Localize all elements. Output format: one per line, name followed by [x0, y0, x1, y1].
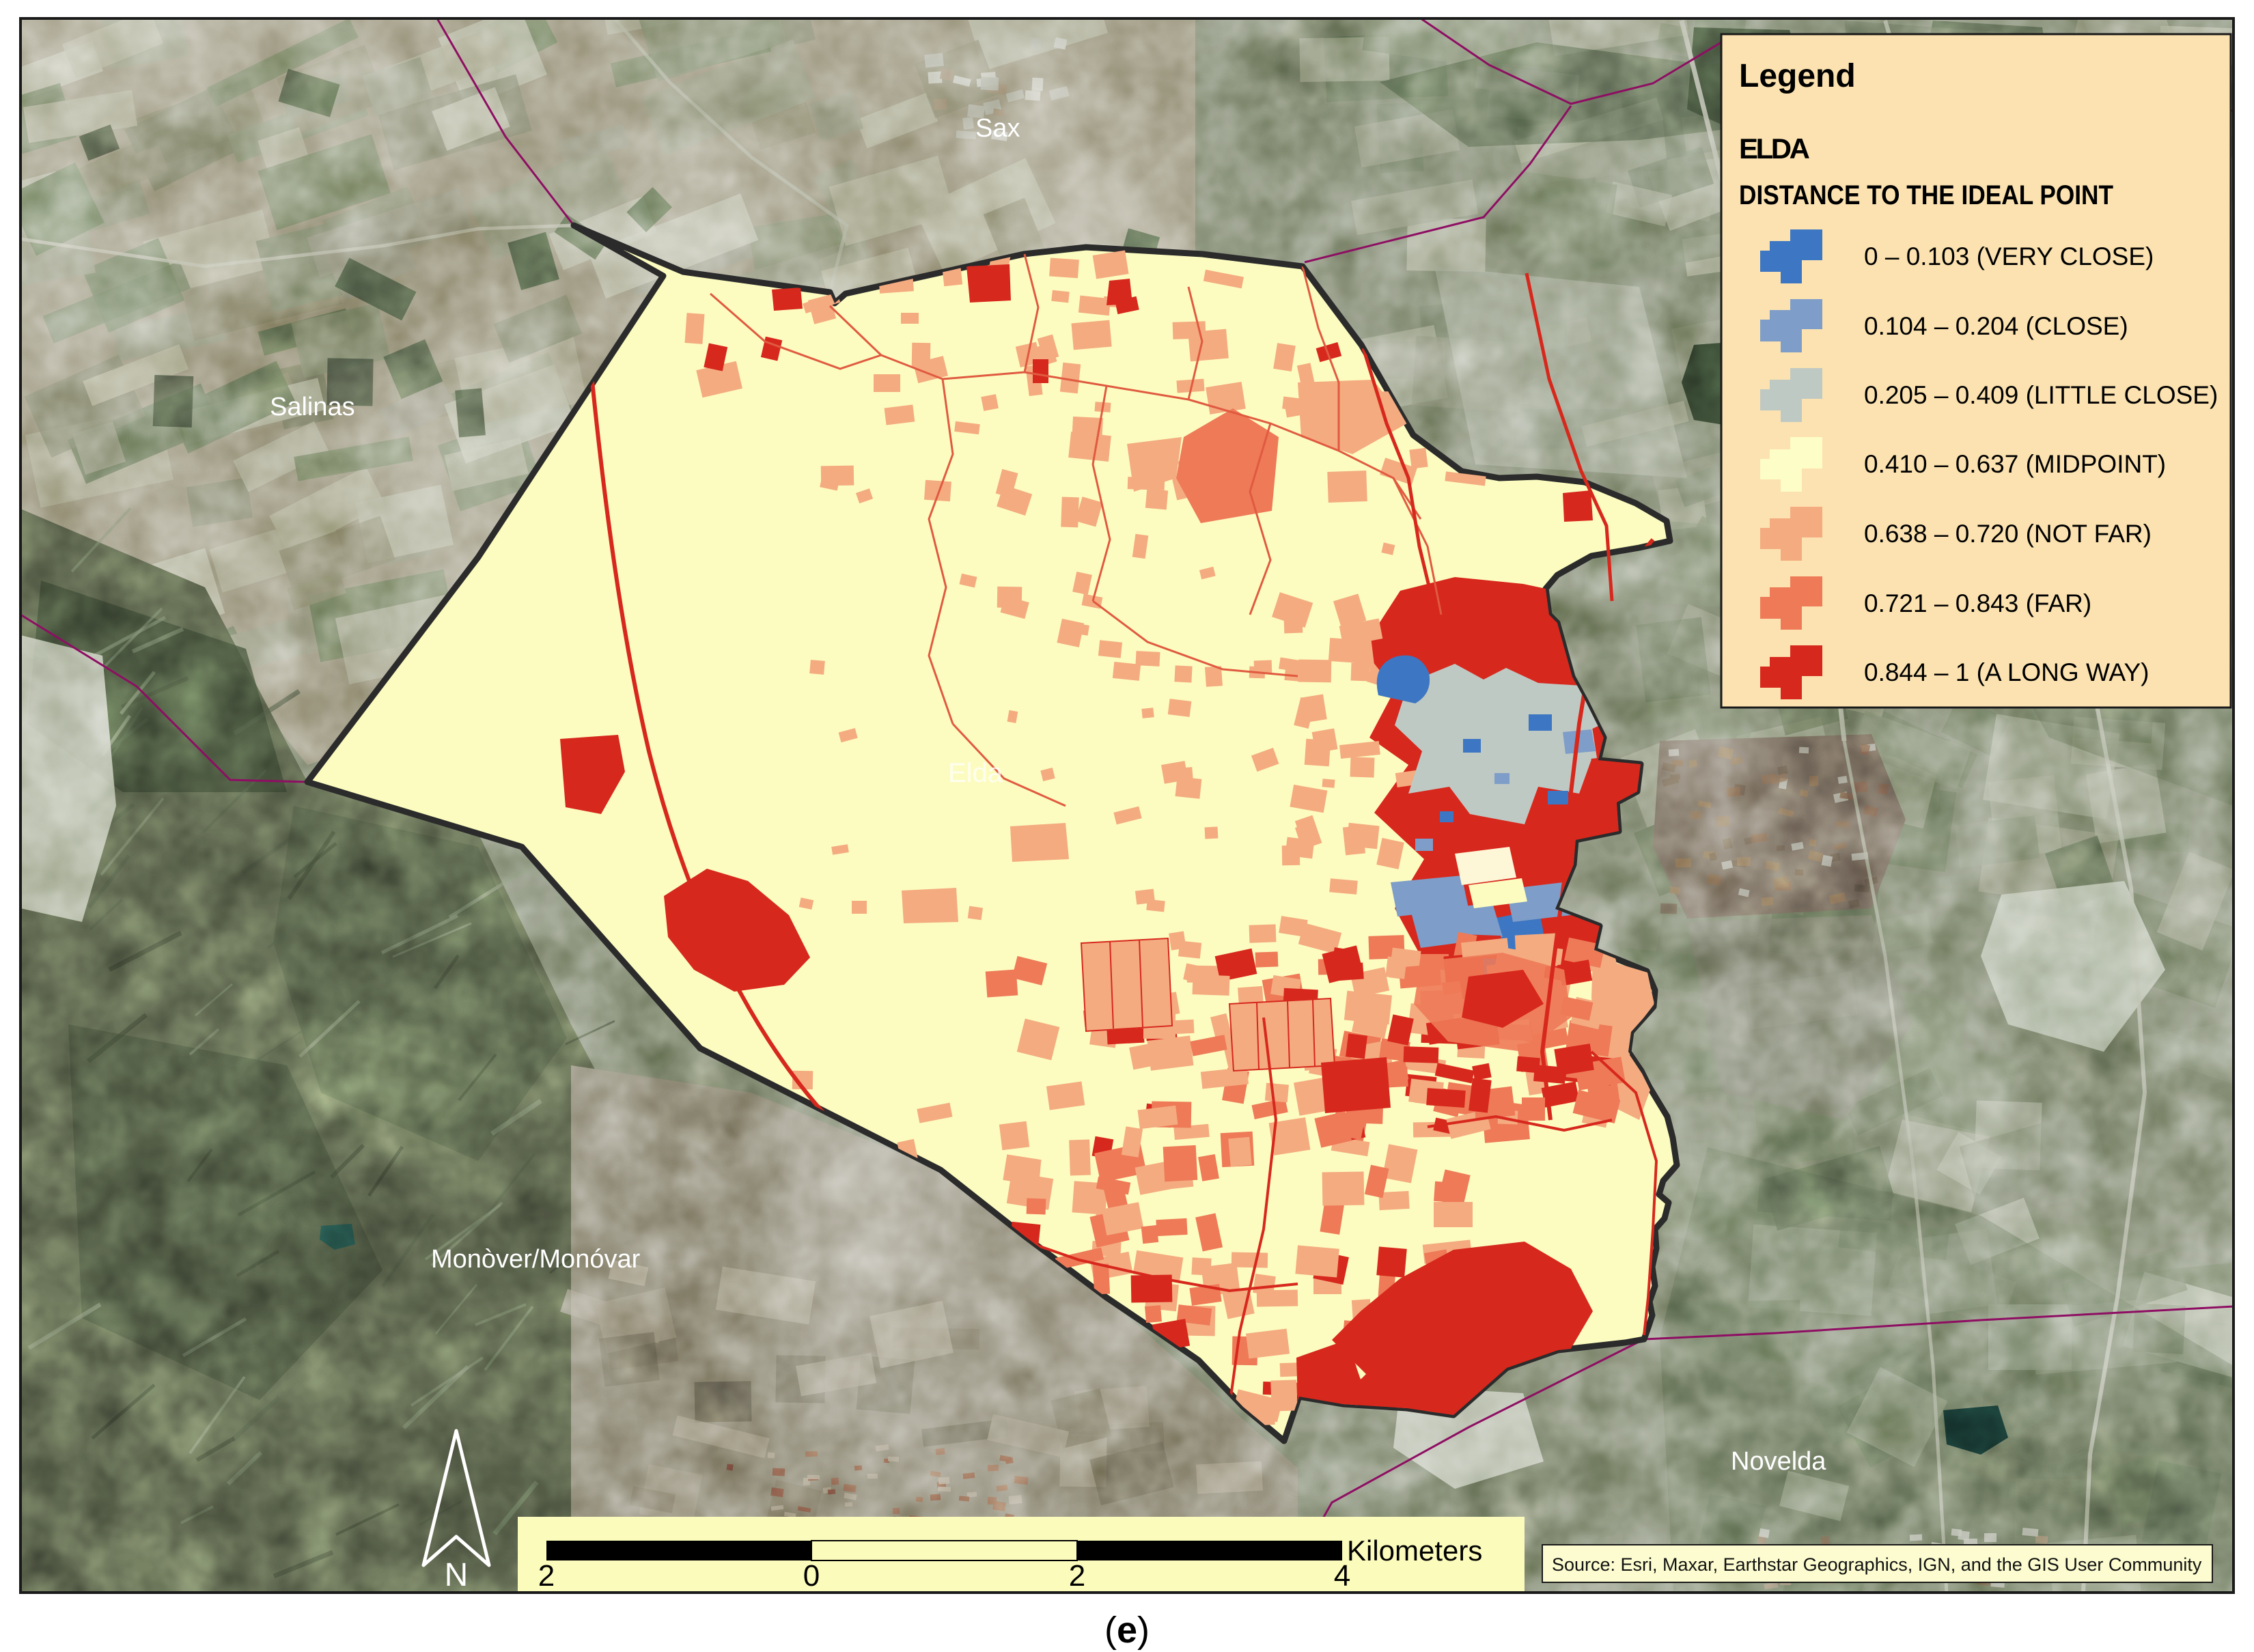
svg-text:Elda: Elda [948, 758, 1003, 788]
svg-text:Salinas: Salinas [270, 393, 355, 421]
svg-text:N: N [445, 1557, 469, 1593]
svg-text:2: 2 [1069, 1559, 1085, 1593]
svg-text:DISTANCE TO THE IDEAL POINT: DISTANCE TO THE IDEAL POINT [1739, 180, 2113, 210]
svg-text:0.638 – 0.720 (NOT FAR): 0.638 – 0.720 (NOT FAR) [1864, 520, 2152, 548]
svg-text:0.205 – 0.409 (LITTLE CLOSE): 0.205 – 0.409 (LITTLE CLOSE) [1864, 381, 2218, 409]
svg-text:Legend: Legend [1739, 58, 1856, 94]
svg-text:2: 2 [538, 1559, 555, 1593]
svg-text:Source: Esri, Maxar, Earthstar: Source: Esri, Maxar, Earthstar Geographi… [1552, 1554, 2202, 1575]
svg-text:Sax: Sax [975, 114, 1020, 143]
svg-text:Kilometers: Kilometers [1347, 1535, 1482, 1567]
svg-text:(e): (e) [1104, 1610, 1150, 1651]
svg-text:Monòver/Monóvar: Monòver/Monóvar [431, 1245, 641, 1274]
svg-text:ELDA: ELDA [1739, 132, 1810, 165]
svg-text:0.844 – 1 (A LONG WAY): 0.844 – 1 (A LONG WAY) [1864, 658, 2149, 686]
svg-text:0: 0 [803, 1559, 820, 1593]
svg-text:Novelda: Novelda [1731, 1447, 1826, 1476]
svg-text:0.410 – 0.637 (MIDPOINT): 0.410 – 0.637 (MIDPOINT) [1864, 450, 2166, 478]
svg-text:0 – 0.103 (VERY CLOSE): 0 – 0.103 (VERY CLOSE) [1864, 242, 2154, 270]
svg-text:0.104 – 0.204 (CLOSE): 0.104 – 0.204 (CLOSE) [1864, 312, 2128, 340]
svg-text:0.721 – 0.843 (FAR): 0.721 – 0.843 (FAR) [1864, 589, 2091, 617]
